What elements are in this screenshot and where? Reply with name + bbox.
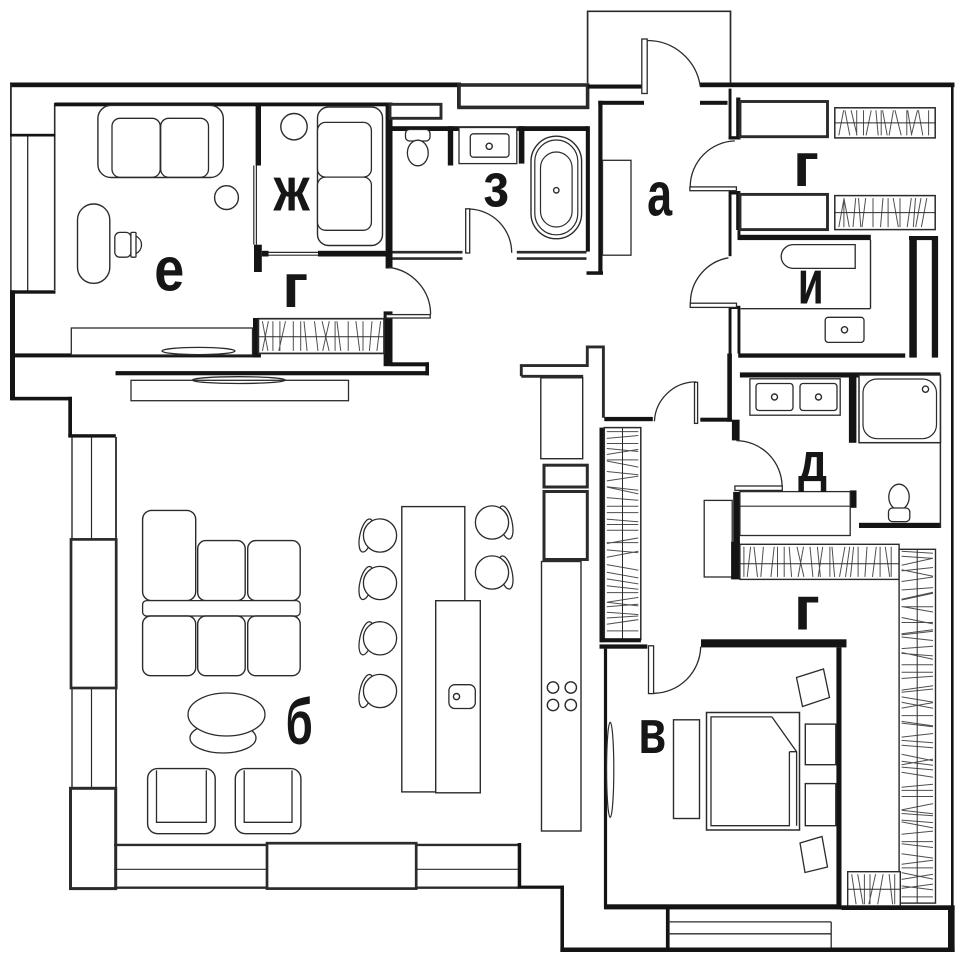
- svg-text:з: з: [483, 151, 509, 220]
- svg-text:в: в: [638, 698, 666, 767]
- svg-text:и: и: [798, 249, 824, 318]
- svg-text:г: г: [794, 574, 820, 643]
- svg-text:д: д: [798, 431, 827, 493]
- svg-text:г: г: [793, 131, 819, 200]
- svg-text:е: е: [154, 236, 184, 305]
- svg-text:ж: ж: [273, 156, 311, 225]
- svg-text:г: г: [282, 252, 308, 321]
- svg-text:а: а: [647, 161, 672, 230]
- svg-text:б: б: [286, 685, 313, 758]
